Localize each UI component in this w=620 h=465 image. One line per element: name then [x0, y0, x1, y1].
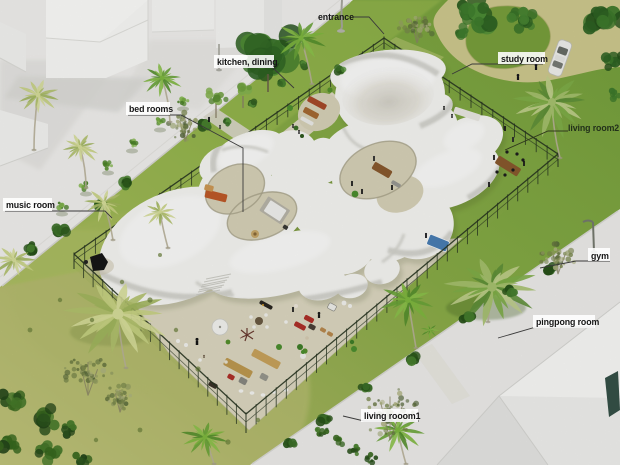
svg-text:kitchen, dining: kitchen, dining	[217, 57, 278, 67]
svg-text:bed rooms: bed rooms	[129, 104, 173, 114]
svg-text:living room2: living room2	[568, 123, 619, 133]
svg-text:music room: music room	[6, 200, 55, 210]
svg-text:entrance: entrance	[318, 12, 354, 22]
svg-text:gym: gym	[591, 251, 609, 261]
svg-text:living rooom1: living rooom1	[364, 411, 421, 421]
svg-text:study room: study room	[501, 54, 548, 64]
svg-text:pingpong room: pingpong room	[536, 317, 599, 327]
